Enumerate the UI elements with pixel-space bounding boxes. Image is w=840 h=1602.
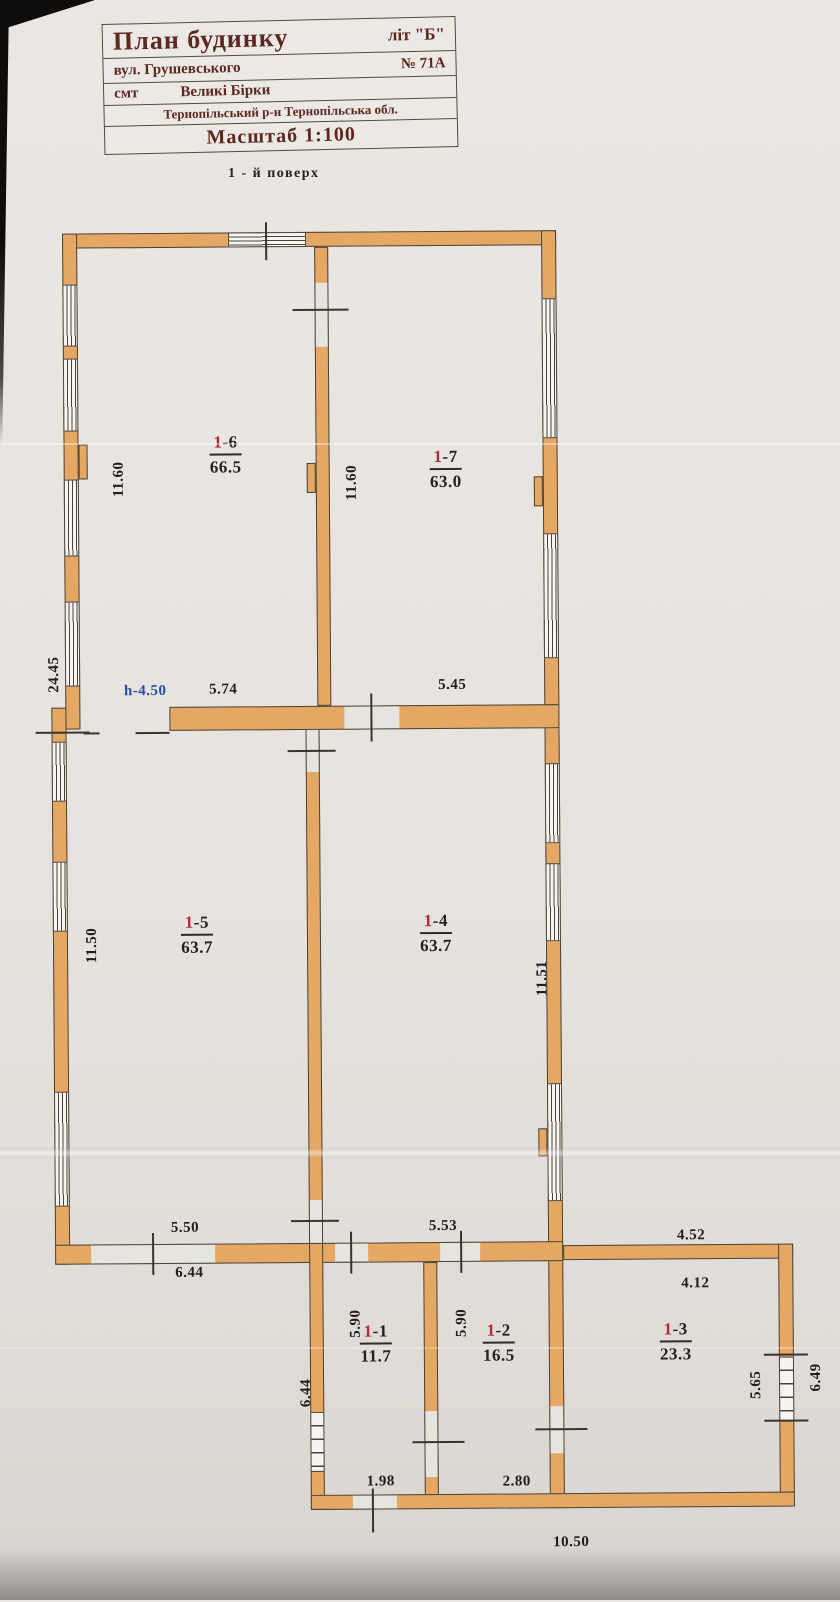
dim-6-44-vertical: 6.44 (298, 1358, 314, 1428)
dim-1-98: 1.98 (346, 1473, 416, 1489)
door-opening (314, 283, 328, 347)
wall-partition-1-5-1-4 (306, 730, 324, 1243)
room-area: 63.7 (391, 934, 481, 957)
dimension-tick (764, 1419, 808, 1421)
window (542, 298, 558, 438)
window (64, 480, 80, 557)
dim-height-4-50: h-4.50 (110, 683, 180, 699)
room-label-1-4: 1-4 63.7 (391, 911, 481, 957)
room-label-1-7: 1-7 63.0 (401, 447, 491, 493)
dim-11-60-left: 11.60 (111, 444, 127, 514)
window (547, 1083, 563, 1201)
room-number: 1-7 (429, 447, 461, 470)
room-number: 1-1 (360, 1321, 392, 1344)
room-area: 63.7 (152, 935, 242, 958)
dim-6-49: 6.49 (808, 1342, 824, 1412)
window (62, 285, 77, 347)
room-label-1-2: 1-2 16.5 (454, 1320, 544, 1366)
dim-5-53: 5.53 (408, 1218, 478, 1234)
scanned-floor-plan-page: План будинку літ "Б" вул. Грушевського №… (0, 0, 840, 1600)
dimension-tick (265, 222, 267, 260)
room-number: 1-2 (483, 1321, 515, 1344)
window (545, 863, 561, 941)
door-opening (424, 1411, 438, 1477)
dim-6-44-horizontal: 6.44 (154, 1265, 224, 1281)
window (63, 359, 79, 432)
floor-plan: 11.60 11.60 24.45 h-4.50 5.74 5.45 11.50… (0, 0, 840, 1602)
dim-4-12: 4.12 (660, 1275, 730, 1291)
dim-5-45: 5.45 (417, 677, 487, 693)
window (52, 742, 67, 802)
room-label-1-1: 1-1 11.7 (331, 1321, 421, 1367)
dimension-tick (288, 750, 336, 752)
wall-top-room-1-3 (563, 1244, 793, 1261)
window (543, 533, 559, 658)
room-label-1-6: 1-6 66.5 (180, 432, 270, 478)
room-number: 1-4 (420, 911, 452, 934)
page-crease (0, 1347, 840, 1349)
pilaster (534, 476, 543, 506)
dim-24-45: 24.45 (46, 640, 62, 710)
room-label-1-5: 1-5 63.7 (152, 912, 242, 958)
page-edge-shadow (0, 1548, 840, 1600)
room-boundary-line (136, 732, 170, 734)
room-number: 1-3 (660, 1319, 692, 1342)
door-opening (353, 1494, 397, 1509)
room-number: 1-5 (181, 913, 213, 936)
dim-5-65: 5.65 (748, 1350, 764, 1420)
dimension-tick (370, 693, 372, 741)
pilaster (307, 463, 316, 493)
dimension-tick (372, 1489, 374, 1533)
dim-5-74: 5.74 (188, 681, 258, 697)
dimension-tick (36, 731, 90, 733)
dimension-tick (293, 309, 349, 311)
room-area: 66.5 (181, 455, 271, 478)
page-fold (0, 1148, 840, 1158)
dimension-tick (460, 1231, 462, 1273)
room-area: 23.3 (631, 1342, 721, 1365)
dimension-tick (535, 1428, 587, 1430)
dimension-tick (350, 1232, 352, 1274)
dim-5-50: 5.50 (150, 1220, 220, 1236)
dim-11-60-middle: 11.60 (344, 448, 360, 518)
dimension-tick (412, 1441, 464, 1443)
dim-2-80: 2.80 (482, 1473, 552, 1489)
dim-11-51: 11.51 (534, 943, 550, 1013)
window (545, 763, 561, 843)
dimension-tick (291, 1220, 339, 1222)
dim-11-50: 11.50 (84, 910, 100, 980)
dimension-tick (764, 1353, 808, 1355)
page-crease (0, 443, 840, 445)
window (65, 602, 81, 687)
wall-top-exterior (62, 230, 556, 248)
dim-4-52: 4.52 (656, 1227, 726, 1243)
pilaster (79, 444, 88, 479)
room-label-1-3: 1-3 23.3 (631, 1319, 721, 1365)
window (779, 1357, 794, 1422)
room-area: 63.0 (401, 470, 491, 493)
window (52, 862, 67, 932)
